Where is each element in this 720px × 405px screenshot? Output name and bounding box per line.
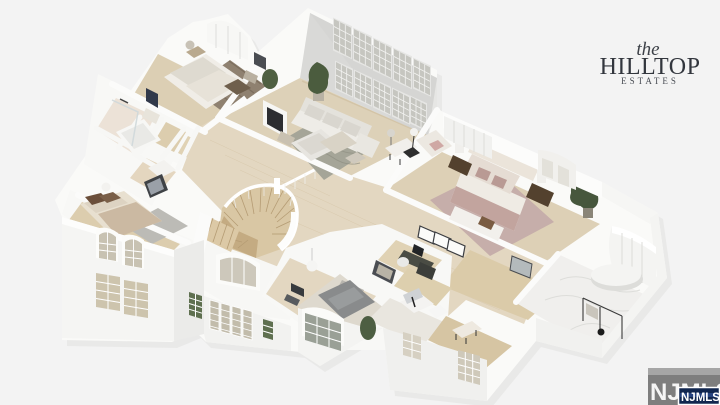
svg-text:ESTATES: ESTATES [621,76,679,86]
svg-text:NJMLS: NJMLS [681,392,720,404]
